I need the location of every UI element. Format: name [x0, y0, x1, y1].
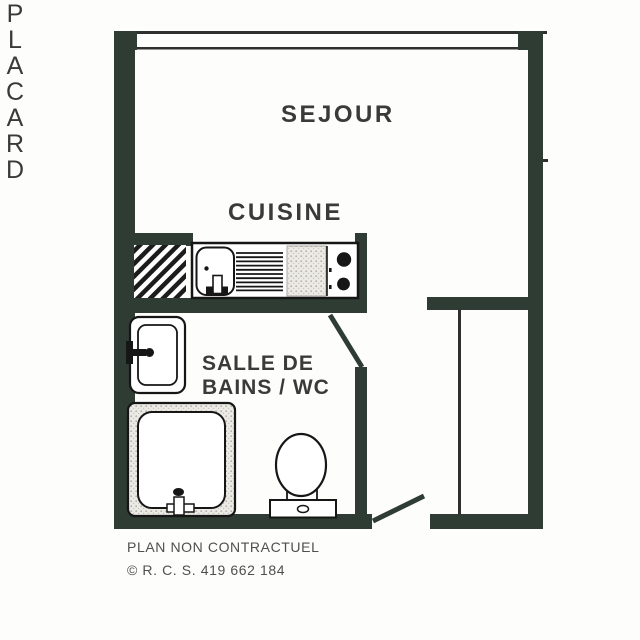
room-label-salle-de-bains: SALLE DE BAINS / WC	[202, 352, 330, 399]
entry-top-wall	[427, 297, 543, 310]
shower-drain	[173, 488, 184, 496]
kitchen-sink-icon	[197, 248, 235, 296]
disclaimer-text: PLAN NON CONTRACTUEL	[127, 539, 319, 555]
floor-plan-drawing	[0, 0, 640, 640]
toilet-flush-button	[298, 506, 309, 513]
bathroom-fixtures	[126, 317, 336, 518]
burner-1	[337, 252, 351, 266]
room-label-cuisine: CUISINE	[228, 199, 343, 227]
sink-drain	[204, 266, 208, 270]
washbasin-icon	[126, 317, 185, 393]
door-swing-icon	[330, 315, 424, 521]
kitchen-top-wall	[125, 233, 193, 246]
floor-plan-page: SEJOUR CUISINE SALLE DE BAINS / WC PLACA…	[0, 0, 640, 640]
toilet-icon	[270, 434, 336, 518]
faucet-tap	[213, 276, 222, 294]
entrance-door-leaf	[373, 496, 424, 521]
bottom-wall-right	[430, 514, 543, 529]
right-wall	[528, 33, 543, 527]
shower-tray-icon	[128, 403, 235, 516]
bathroom-right-wall	[355, 367, 367, 514]
window-outer-line	[114, 31, 547, 34]
stove-knob-2	[329, 285, 332, 289]
worktop-icon	[287, 246, 326, 296]
burner-2	[337, 278, 350, 291]
basin-faucet-body	[126, 341, 133, 364]
basin-faucet-spout	[133, 349, 146, 356]
toilet-bowl	[276, 434, 326, 496]
right-wall-tick	[543, 159, 548, 162]
window-inner-line	[135, 47, 519, 50]
room-label-sejour: SEJOUR	[281, 101, 395, 129]
stove-knob-1	[329, 268, 332, 272]
basin-faucet-knob	[145, 348, 154, 357]
shower-valve-stem	[174, 497, 184, 515]
bathroom-top-wall	[114, 298, 367, 313]
window-icon	[114, 31, 547, 50]
copyright-text: © R. C. S. 419 662 184	[127, 562, 285, 578]
placard-front-line	[458, 310, 461, 514]
bathroom-door-leaf	[330, 315, 362, 367]
kitchen-fixtures	[134, 243, 358, 298]
duct-hatch-icon	[134, 245, 186, 298]
